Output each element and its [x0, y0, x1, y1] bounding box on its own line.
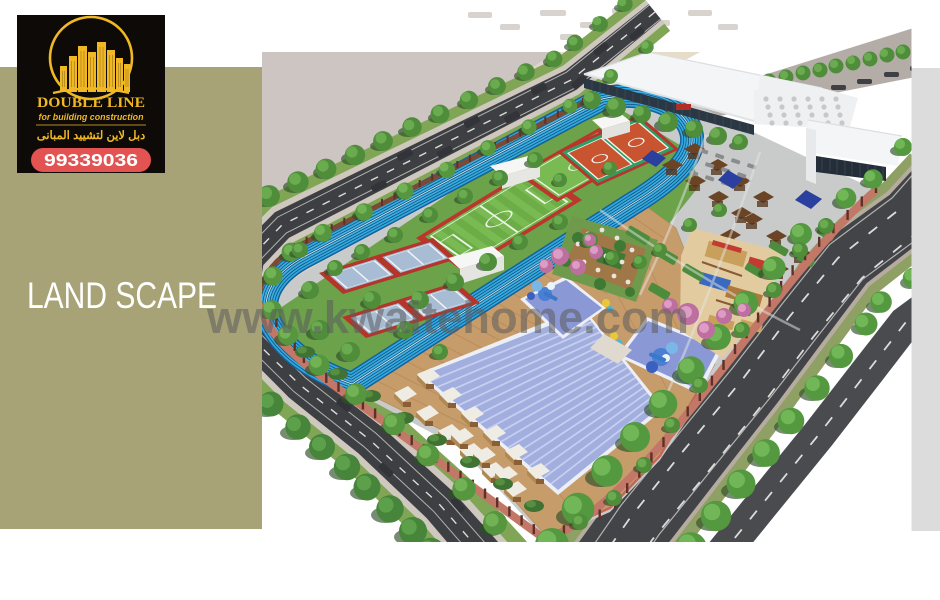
svg-text:99339036: 99339036 [44, 150, 138, 170]
svg-text:LAND SCAPE: LAND SCAPE [27, 275, 217, 316]
svg-text:www.kwaitehome.com: www.kwaitehome.com [206, 292, 689, 343]
svg-text:DOUBLE LINE: DOUBLE LINE [37, 95, 145, 111]
svg-text:دبل لاين لتشييد المبانى: دبل لاين لتشييد المبانى [37, 129, 145, 143]
svg-text:for building construction: for building construction [39, 112, 144, 123]
